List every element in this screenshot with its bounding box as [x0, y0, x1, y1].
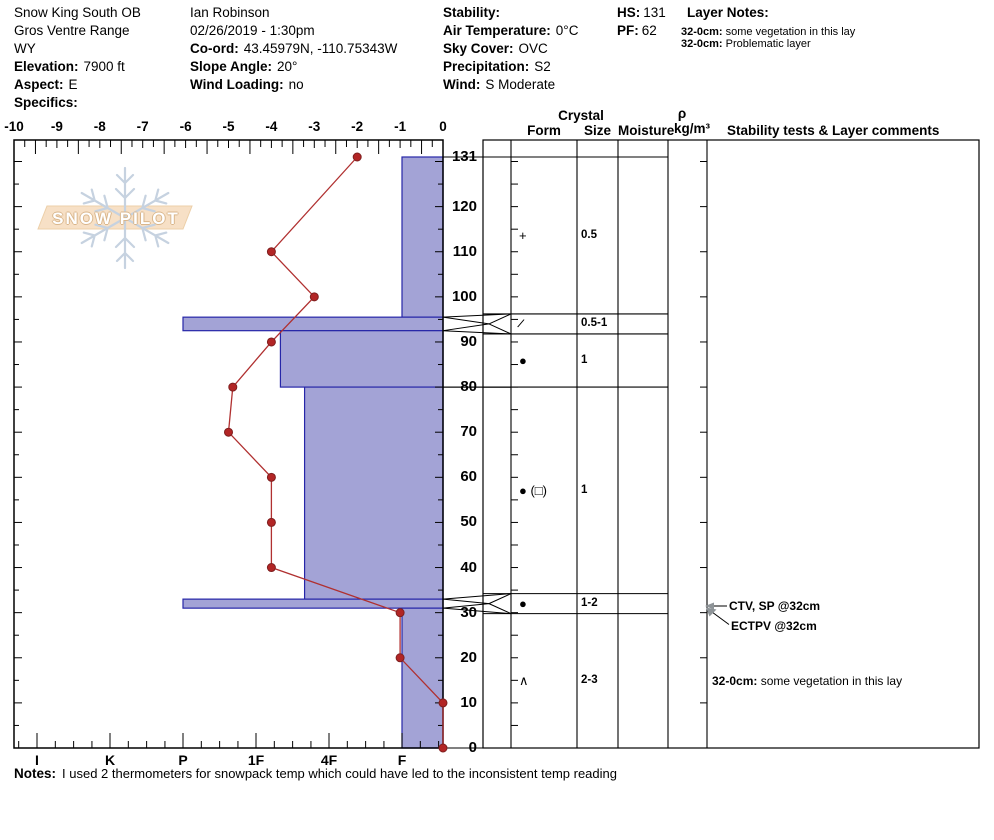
hardness-bar-layer-0 — [402, 157, 443, 317]
hardness-bar-layer-5 — [402, 608, 443, 748]
temperature-point — [396, 654, 404, 662]
temperature-point — [267, 518, 275, 526]
temperature-point — [267, 248, 275, 256]
layer-connector — [489, 314, 511, 324]
temperature-point — [310, 293, 318, 301]
temperature-point — [225, 428, 233, 436]
hardness-bar-layer-4 — [183, 599, 443, 608]
hardness-bar-layer-1 — [183, 317, 443, 331]
temperature-point — [229, 383, 237, 391]
crystal-table-border — [483, 140, 979, 748]
up-left-arrowhead-icon — [706, 608, 717, 617]
snowpilot-watermark: SNOW PILOT — [50, 209, 182, 229]
temperature-point — [267, 338, 275, 346]
snow-profile-report: Snow King South OB Gros Ventre Range WY … — [0, 0, 994, 840]
hardness-bar-layer-2 — [280, 331, 443, 387]
test-arrow-line — [712, 612, 729, 625]
temperature-point — [353, 153, 361, 161]
layer-connector — [443, 604, 489, 609]
temperature-point — [267, 473, 275, 481]
hardness-bar-layer-3 — [305, 387, 443, 599]
layer-connector — [489, 324, 511, 334]
layer-connector — [443, 324, 489, 331]
temperature-point — [439, 699, 447, 707]
snow-profile-chart — [0, 0, 994, 840]
temperature-point — [267, 564, 275, 572]
temperature-point — [439, 744, 447, 752]
layer-connector — [443, 317, 489, 324]
layer-connector — [443, 331, 511, 334]
layer-connector — [443, 314, 511, 317]
layer-connector — [443, 599, 489, 604]
temperature-point — [396, 609, 404, 617]
